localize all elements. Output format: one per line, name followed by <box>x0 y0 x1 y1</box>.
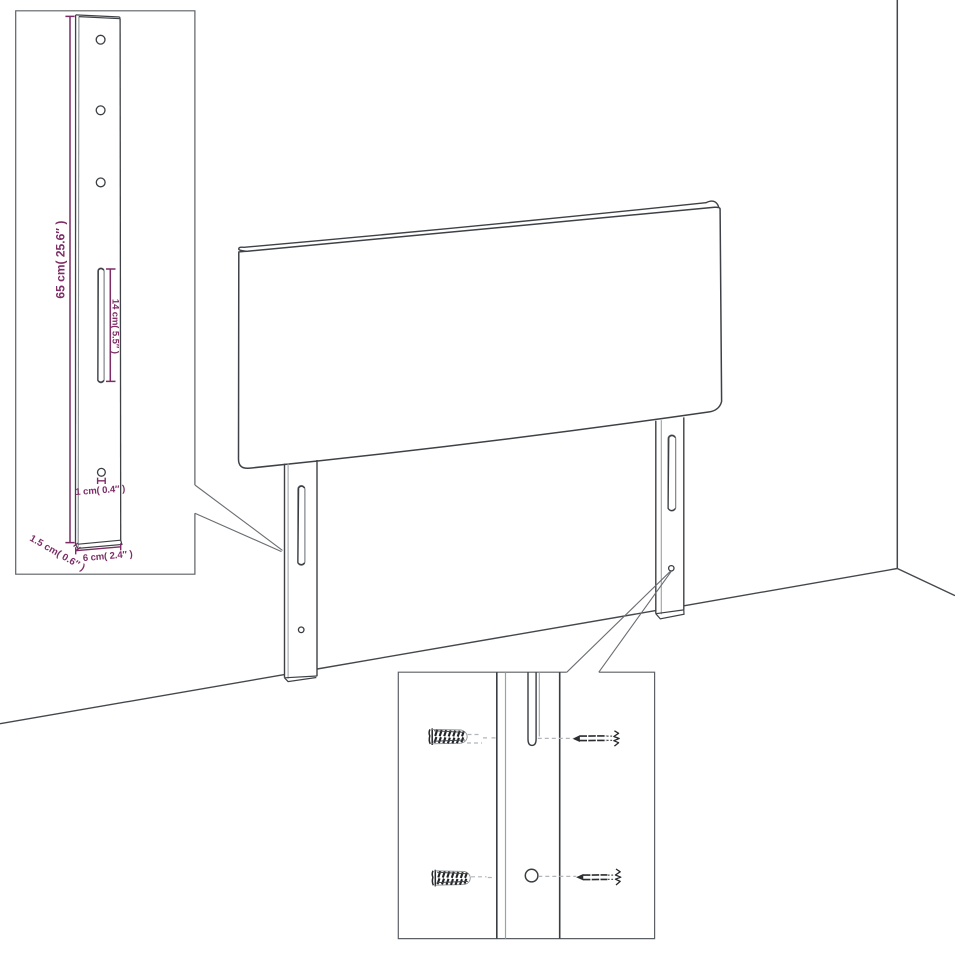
svg-text:65 cm( 25.6″ ): 65 cm( 25.6″ ) <box>53 221 67 299</box>
svg-text:14 cm( 5.5″ ): 14 cm( 5.5″ ) <box>110 299 121 354</box>
